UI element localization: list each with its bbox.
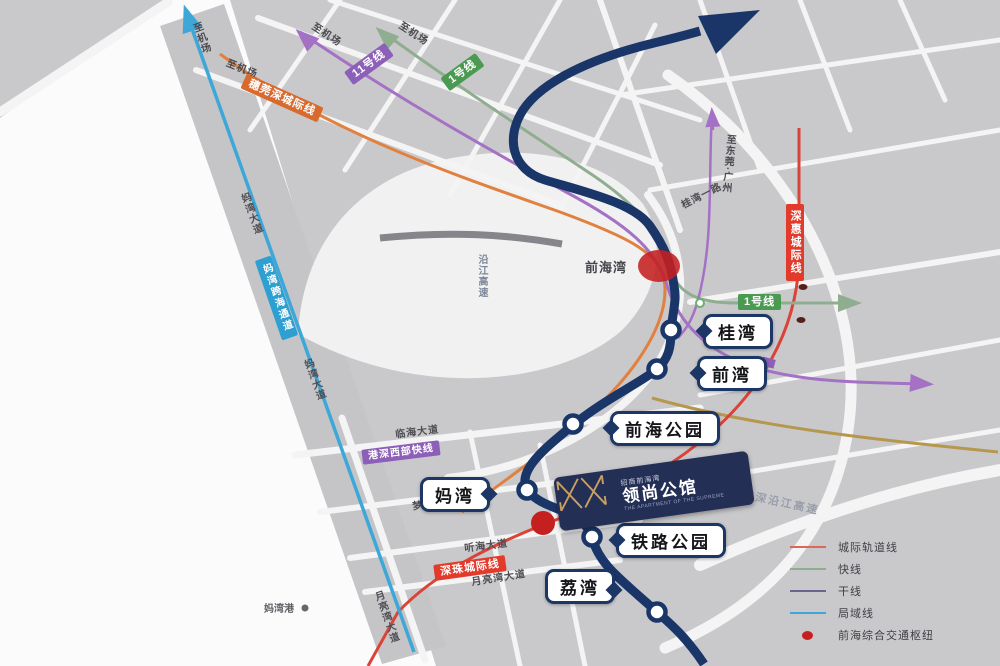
legend-label: 前海综合交通枢纽 (838, 627, 934, 643)
legend-hub-dot (802, 631, 813, 640)
shenhui-intercity-badge: 深惠城际线 (786, 204, 804, 281)
legend-row: 干线 (790, 580, 934, 602)
station-callout-qianwan: 前湾 (697, 356, 767, 391)
legend-label: 城际轨道线 (838, 539, 898, 555)
railway-park-hub-marker (531, 511, 555, 535)
station-callout-guiwan: 桂湾 (703, 314, 773, 349)
station-label: 铁路公园 (631, 533, 711, 552)
green-line-interchange-dot (696, 299, 704, 307)
station-label: 妈湾 (435, 487, 475, 506)
station-label: 前海公园 (625, 421, 705, 440)
station-label: 桂湾 (718, 324, 758, 343)
purple-arrow-north (712, 112, 713, 130)
transit-location-map: 桂湾 前湾 前海公园 妈湾 铁路公园 荔湾 前海湾 妈湾港 11号线 1号线 1… (0, 0, 1000, 666)
mawan-port-label: 妈湾港 (264, 600, 294, 615)
legend-swatch-trunk (790, 590, 826, 592)
red-line-stop-2 (797, 317, 806, 323)
station-callout-qianhai-park: 前海公园 (610, 411, 720, 446)
station-callout-railway-park: 铁路公园 (616, 523, 726, 558)
legend-swatch-local (790, 612, 826, 614)
mawan-port-dot (302, 605, 309, 612)
station-label: 前湾 (712, 366, 752, 385)
legend-swatch-intercity (790, 546, 826, 548)
legend-row: 城际轨道线 (790, 536, 934, 558)
station-callout-mawan: 妈湾 (420, 477, 490, 512)
legend-label: 干线 (838, 583, 862, 599)
legend-row: 局域线 (790, 602, 934, 624)
purple-arrow-east (912, 383, 928, 384)
legend-swatch-express (790, 568, 826, 570)
logo-text-block: 招商前海湾 领尚公馆 THE APARTMENT OF THE SUPREME (620, 465, 725, 513)
yanjiang-expwy-label: 沿江高速 (474, 254, 489, 298)
brand-monogram-icon (565, 496, 616, 503)
legend-row: 前海综合交通枢纽 (790, 624, 934, 646)
line1-badge-right: 1号线 (738, 294, 781, 310)
qianhai-bay-label: 前海湾 (585, 257, 627, 276)
station-label: 荔湾 (560, 579, 600, 598)
station-callout-liwan: 荔湾 (545, 569, 615, 604)
qianhaiwan-hub-marker (638, 250, 680, 282)
legend: 城际轨道线 快线 干线 局域线 前海综合交通枢纽 (790, 536, 934, 646)
legend-label: 局域线 (838, 605, 874, 621)
legend-row: 快线 (790, 558, 934, 580)
legend-label: 快线 (838, 561, 862, 577)
red-line-stop-1 (799, 284, 808, 290)
